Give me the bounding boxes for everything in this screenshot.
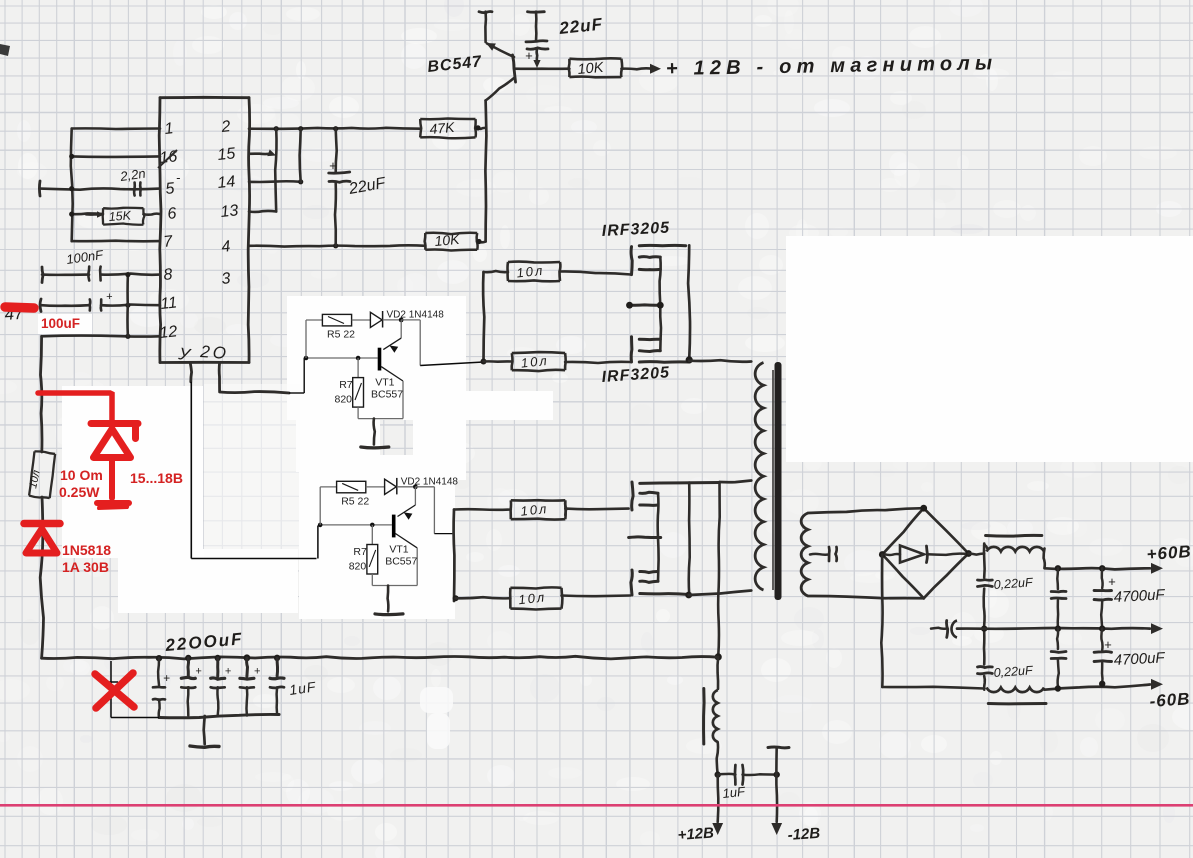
svg-text:3: 3 bbox=[221, 270, 232, 288]
svg-text:1A 30В: 1A 30В bbox=[62, 559, 109, 575]
svg-text:BC557: BC557 bbox=[385, 555, 417, 567]
svg-text:4700uF: 4700uF bbox=[1113, 586, 1166, 606]
svg-text:0.25W: 0.25W bbox=[59, 484, 100, 500]
svg-text:BC557: BC557 bbox=[371, 389, 403, 401]
svg-text:1N5818: 1N5818 bbox=[62, 542, 111, 558]
svg-text:+: + bbox=[163, 671, 170, 685]
svg-text:+12В: +12В bbox=[677, 824, 715, 844]
svg-text:6: 6 bbox=[167, 205, 178, 223]
svg-text:10л: 10л bbox=[520, 501, 549, 519]
svg-text:+: + bbox=[329, 158, 337, 173]
svg-text:R7: R7 bbox=[353, 546, 367, 558]
svg-text:-12В: -12В bbox=[787, 825, 821, 844]
svg-text:11: 11 bbox=[160, 294, 178, 313]
svg-text:2: 2 bbox=[220, 118, 232, 136]
svg-text:0,22uF: 0,22uF bbox=[993, 575, 1034, 592]
svg-text:14: 14 bbox=[217, 173, 237, 192]
svg-text:R5 22: R5 22 bbox=[341, 495, 369, 507]
svg-text:R7: R7 bbox=[339, 379, 353, 391]
svg-text:15: 15 bbox=[217, 145, 237, 164]
svg-text:15K: 15K bbox=[108, 208, 132, 224]
svg-text:-: - bbox=[176, 170, 181, 185]
svg-text:10л: 10л bbox=[518, 589, 547, 607]
svg-text:12: 12 bbox=[159, 323, 179, 342]
svg-text:15...18В: 15...18В bbox=[130, 470, 183, 486]
svg-text:VT1: VT1 bbox=[375, 377, 394, 389]
svg-text:4700uF: 4700uF bbox=[1113, 649, 1166, 669]
svg-text:+: + bbox=[195, 665, 202, 677]
svg-text:1: 1 bbox=[164, 120, 175, 138]
svg-text:+: + bbox=[254, 665, 261, 677]
svg-text:+: + bbox=[1104, 637, 1112, 652]
svg-text:10л: 10л bbox=[520, 353, 549, 371]
svg-text:820: 820 bbox=[335, 394, 353, 406]
svg-text:2О: 2О bbox=[199, 342, 230, 363]
svg-text:-60В: -60В bbox=[1149, 689, 1191, 711]
svg-text:1uF: 1uF bbox=[722, 784, 747, 801]
svg-text:IRF3205: IRF3205 bbox=[601, 219, 670, 240]
svg-text:+: + bbox=[525, 48, 533, 63]
svg-text:VD2 1N4148: VD2 1N4148 bbox=[401, 476, 459, 487]
svg-text:4: 4 bbox=[221, 238, 232, 256]
svg-text:10л: 10л bbox=[516, 263, 545, 281]
svg-text:0,22uF: 0,22uF bbox=[993, 663, 1034, 680]
svg-text:10 Om: 10 Om bbox=[60, 467, 103, 483]
svg-text:+: + bbox=[225, 665, 232, 677]
svg-text:820: 820 bbox=[349, 560, 367, 572]
svg-text:10K: 10K bbox=[434, 231, 461, 249]
svg-text:+60В: +60В bbox=[1146, 542, 1192, 564]
svg-text:VT1: VT1 bbox=[389, 543, 408, 555]
svg-text:10K: 10K bbox=[577, 60, 605, 78]
svg-text:100uF: 100uF bbox=[41, 316, 80, 331]
svg-text:47K: 47K bbox=[429, 119, 456, 137]
svg-text:+: + bbox=[1108, 574, 1116, 589]
svg-text:+: + bbox=[106, 291, 113, 303]
svg-text:R5 22: R5 22 bbox=[327, 329, 355, 341]
svg-text:5: 5 bbox=[165, 180, 176, 198]
svg-text:8: 8 bbox=[163, 266, 174, 284]
svg-text:13: 13 bbox=[220, 202, 240, 221]
svg-text:VD2 1N4148: VD2 1N4148 bbox=[387, 310, 445, 321]
